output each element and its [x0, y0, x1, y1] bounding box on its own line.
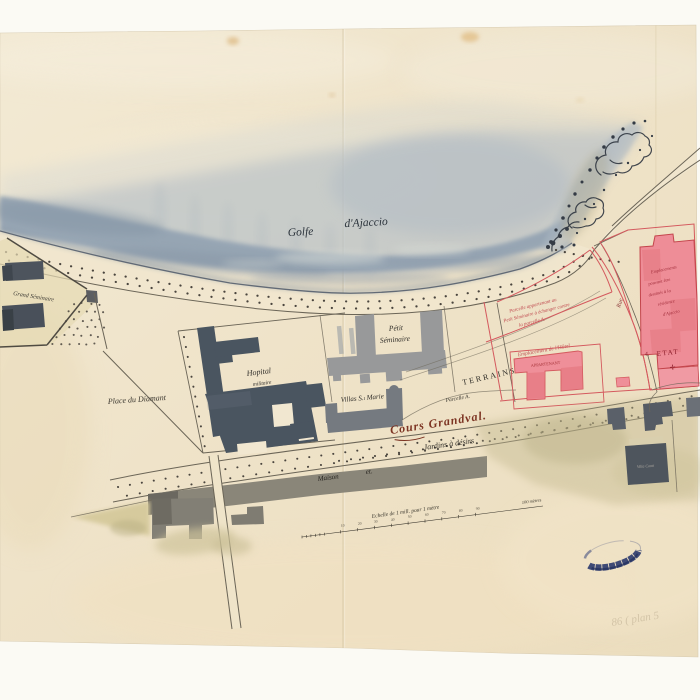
- svg-text:d'Ajaccio: d'Ajaccio: [344, 216, 388, 230]
- svg-text:4.: 4.: [644, 351, 649, 358]
- svg-text:20: 20: [358, 521, 362, 526]
- svg-text:50: 50: [408, 514, 412, 519]
- svg-text:et.: et.: [365, 467, 373, 476]
- svg-text:60: 60: [425, 512, 429, 517]
- svg-text:90: 90: [476, 506, 480, 511]
- svg-text:70: 70: [442, 510, 446, 515]
- svg-text:30: 30: [374, 519, 378, 524]
- svg-text:40: 40: [391, 517, 395, 522]
- svg-text:10: 10: [341, 523, 345, 528]
- svg-text:Pétit: Pétit: [388, 323, 405, 333]
- svg-text:80: 80: [459, 508, 463, 513]
- svg-text:Golfe: Golfe: [288, 226, 314, 239]
- svg-text:✛: ✛: [669, 363, 676, 372]
